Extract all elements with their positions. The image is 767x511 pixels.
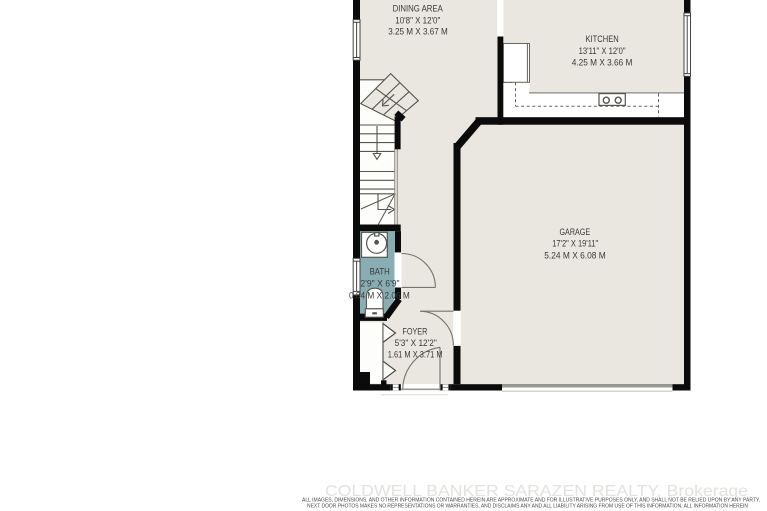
svg-text:10'8" X 12'0": 10'8" X 12'0" <box>395 15 440 25</box>
svg-text:2'9" X 6'9": 2'9" X 6'9" <box>360 278 399 288</box>
svg-text:BATH: BATH <box>370 267 390 277</box>
svg-text:FOYER: FOYER <box>402 327 427 337</box>
svg-text:DINING AREA: DINING AREA <box>393 4 443 14</box>
svg-text:0.84 M X 2.06 M: 0.84 M X 2.06 M <box>349 291 410 301</box>
svg-text:5'3" X 12'2": 5'3" X 12'2" <box>395 338 437 348</box>
svg-text:1.61 M X 3.71 M: 1.61 M X 3.71 M <box>388 349 443 359</box>
svg-text:13'11" X 12'0": 13'11" X 12'0" <box>579 46 626 56</box>
svg-text:NEXT DOOR PHOTOS MAKES NO REPR: NEXT DOOR PHOTOS MAKES NO REPRESENTATION… <box>307 504 748 510</box>
svg-text:5.24 M X 6.08 M: 5.24 M X 6.08 M <box>544 250 606 260</box>
svg-text:4.25 M X 3.66 M: 4.25 M X 3.66 M <box>572 58 633 68</box>
svg-text:GARAGE: GARAGE <box>560 227 591 237</box>
svg-text:KITCHEN: KITCHEN <box>585 34 618 44</box>
svg-text:3.25 M X 3.67 M: 3.25 M X 3.67 M <box>388 27 448 37</box>
svg-text:17'2" X 19'11": 17'2" X 19'11" <box>552 239 598 249</box>
